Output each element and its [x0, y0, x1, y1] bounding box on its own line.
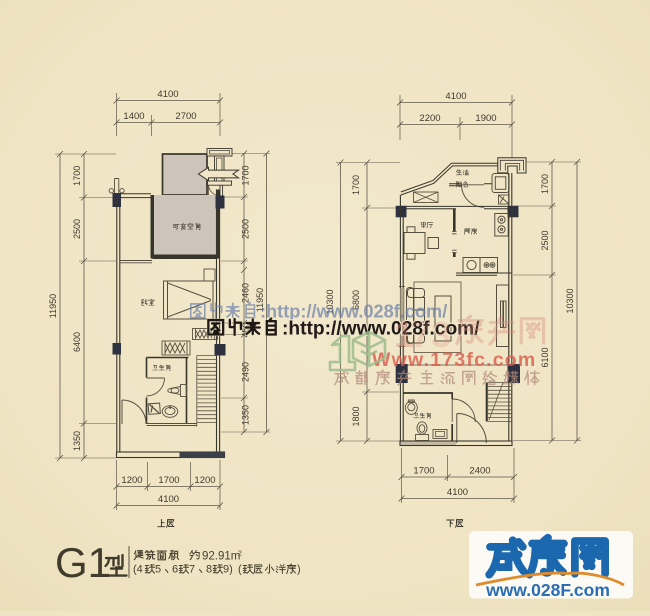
svg-text:10300: 10300 — [565, 288, 575, 313]
svg-text:1700: 1700 — [540, 174, 550, 194]
svg-text:(4: (4 — [133, 564, 143, 576]
svg-text:11950: 11950 — [48, 294, 58, 318]
svg-text:1400: 1400 — [123, 111, 144, 122]
svg-text:8: 8 — [206, 564, 212, 576]
svg-text:2: 2 — [238, 551, 242, 558]
svg-text:1350: 1350 — [241, 405, 251, 425]
svg-text:1700: 1700 — [413, 466, 434, 477]
svg-text:2400: 2400 — [469, 466, 490, 477]
svg-text:Www.173fc.com: Www.173fc.com — [372, 349, 536, 371]
svg-text:1350: 1350 — [72, 431, 82, 451]
svg-text:2700: 2700 — [175, 111, 196, 122]
svg-text:1700: 1700 — [158, 475, 179, 486]
svg-text:4100: 4100 — [157, 89, 178, 100]
svg-text:6: 6 — [172, 564, 178, 576]
svg-text:4100: 4100 — [158, 494, 179, 505]
svg-text:1200: 1200 — [194, 475, 215, 486]
svg-text:7: 7 — [189, 564, 195, 576]
svg-text:2490: 2490 — [241, 362, 251, 382]
svg-text:2500: 2500 — [241, 219, 251, 239]
svg-text:): ) — [297, 564, 301, 576]
svg-text:5: 5 — [155, 564, 161, 576]
svg-text:6400: 6400 — [72, 332, 82, 352]
svg-text:2500: 2500 — [540, 230, 550, 250]
svg-text:2460: 2460 — [241, 283, 251, 303]
svg-text:2500: 2500 — [72, 219, 82, 239]
svg-text:9): 9) — [223, 564, 233, 576]
svg-text:92.91m: 92.91m — [202, 551, 240, 563]
svg-text:www.028F.com: www.028F.com — [485, 580, 610, 600]
svg-text:1700: 1700 — [351, 175, 361, 195]
svg-text:1200: 1200 — [121, 475, 142, 486]
svg-text:1900: 1900 — [475, 113, 496, 124]
svg-text:1800: 1800 — [351, 406, 361, 426]
svg-text:4100: 4100 — [447, 487, 468, 498]
svg-text:1700: 1700 — [241, 165, 251, 185]
svg-text:4100: 4100 — [445, 91, 466, 102]
svg-text:(: ( — [238, 564, 242, 576]
svg-text:1700: 1700 — [72, 166, 82, 186]
svg-text:2200: 2200 — [419, 113, 440, 124]
svg-text:G1: G1 — [55, 539, 111, 586]
svg-text:6100: 6100 — [540, 347, 550, 367]
